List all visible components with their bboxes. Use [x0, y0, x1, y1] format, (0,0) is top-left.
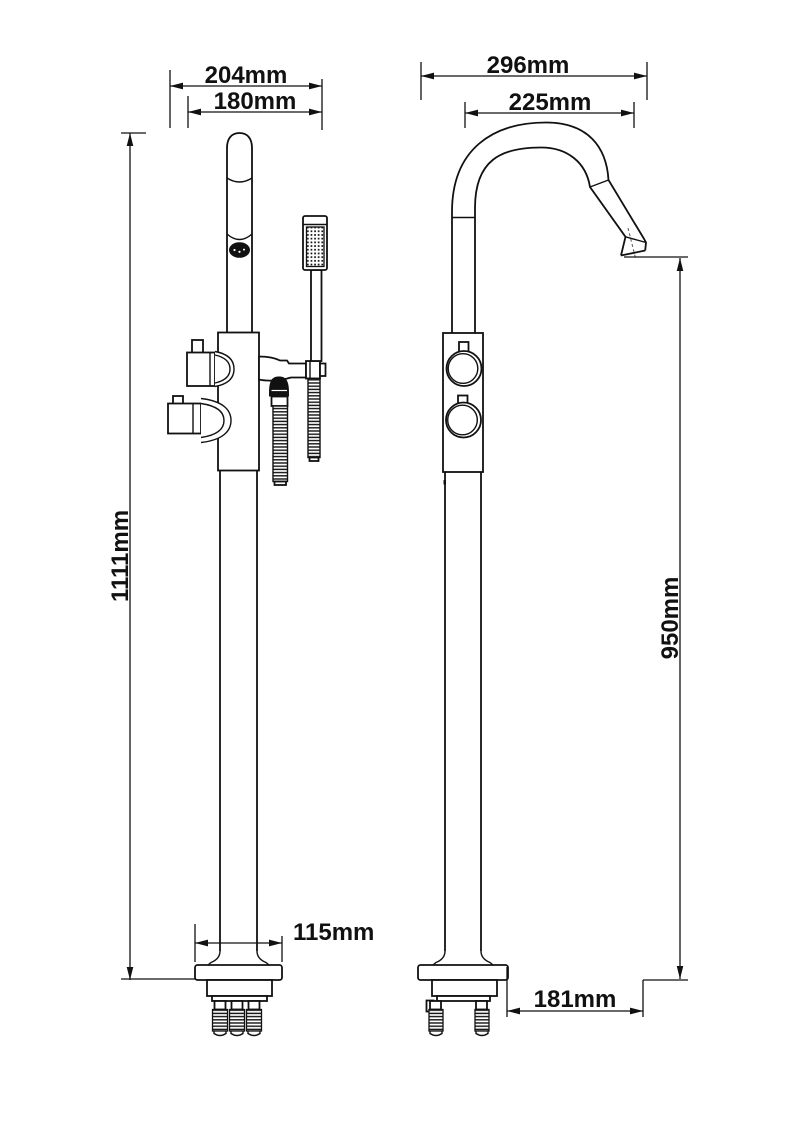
hose-nut — [272, 397, 288, 407]
tail-stem — [249, 1001, 260, 1010]
technical-drawing-canvas: 204mm 180mm 296mm 225mm 1111mm — [0, 0, 800, 1132]
hose-end-cap — [275, 482, 287, 486]
tail-thread — [429, 1010, 443, 1032]
handle-stem — [192, 340, 203, 353]
outlet-highlight — [238, 251, 240, 253]
handle-knob — [168, 404, 201, 434]
tail-stem — [430, 1001, 441, 1010]
handle-knob-outer — [447, 351, 482, 386]
base-tail — [213, 1001, 228, 1036]
base-plate — [418, 965, 508, 980]
base-tail — [247, 1001, 262, 1036]
dimension-label: 296mm — [487, 52, 570, 79]
dimension-label: 950mm — [657, 577, 684, 660]
technical-drawing-page: 204mm 180mm 296mm 225mm 1111mm — [0, 0, 800, 1132]
dimension-label: 115mm — [293, 919, 374, 946]
flex-hose — [273, 406, 288, 482]
outlet-highlight — [243, 249, 245, 251]
tail-stem — [232, 1001, 243, 1010]
base-block — [207, 980, 272, 996]
tail-thread — [213, 1010, 228, 1032]
handshower-handle — [311, 270, 322, 361]
base-block — [432, 980, 497, 996]
nut-side-cap — [320, 364, 326, 377]
tail-thread — [230, 1010, 245, 1032]
outlet-highlight — [233, 249, 235, 251]
handshower-hose — [308, 379, 320, 458]
handle-knob — [187, 353, 215, 387]
front-spout-outlet — [229, 242, 250, 258]
tail-stem — [215, 1001, 226, 1010]
base-plate — [195, 965, 282, 980]
handle-knob-outer — [446, 403, 481, 438]
dimension-label: 1111mm — [107, 510, 134, 602]
tail-stem — [476, 1001, 487, 1010]
base-tail — [475, 1001, 489, 1036]
dimension-label: 225mm — [509, 89, 592, 116]
front-body — [218, 333, 259, 471]
shower-holder-nut — [306, 361, 320, 379]
handshower-hose-end — [310, 458, 319, 462]
dimension-label: 180mm — [214, 88, 297, 115]
tail-thread — [247, 1010, 262, 1032]
handshower-spray-face — [307, 227, 325, 267]
base-tail — [230, 1001, 245, 1036]
tail-thread — [475, 1010, 489, 1032]
base-tail — [427, 1001, 444, 1036]
dimension-label: 181mm — [534, 986, 617, 1013]
hose-elbow-cap — [269, 377, 289, 397]
dimension-label: 204mm — [205, 62, 288, 89]
